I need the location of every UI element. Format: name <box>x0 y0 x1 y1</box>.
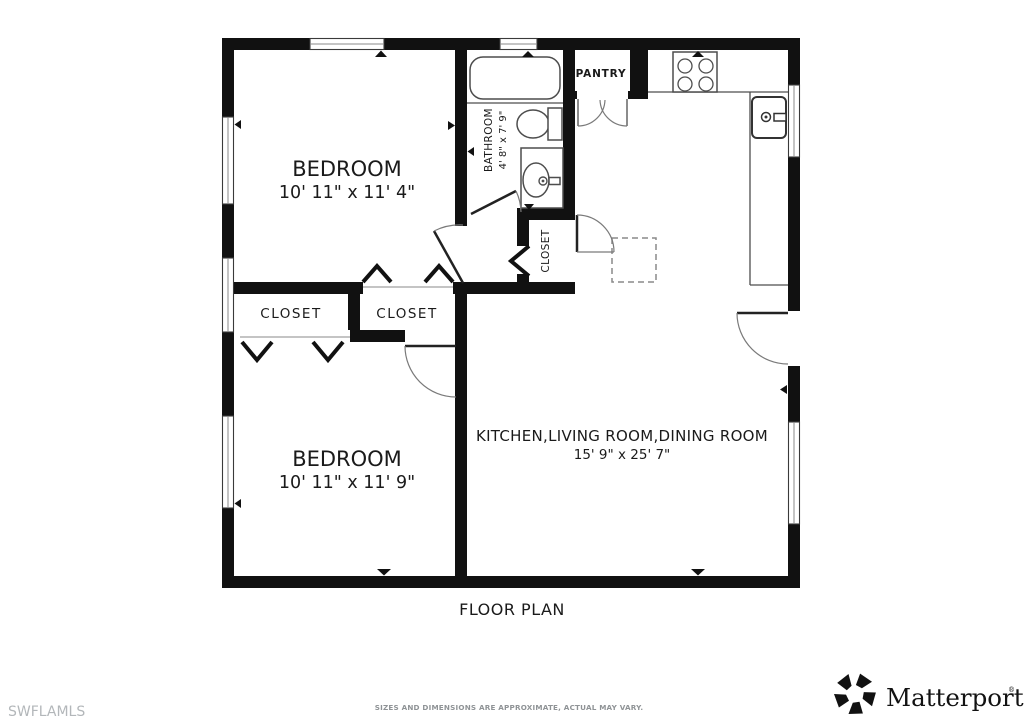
matterport-wordmark: Matterport <box>886 683 1024 712</box>
window-left-bedroom-top <box>223 117 234 204</box>
bathtub <box>467 57 563 103</box>
matterport-logo: Matterport ® <box>834 674 1024 714</box>
window-top-bathroom <box>500 39 537 50</box>
registered-mark: ® <box>1008 686 1015 694</box>
window-left-closet <box>223 258 234 332</box>
bedroom-top-label: BEDROOM <box>292 157 402 181</box>
marker-top-bedroom-window <box>375 51 387 58</box>
closet-left-label: CLOSET <box>260 306 321 322</box>
closet-hall-label: CLOSET <box>540 229 552 272</box>
appliance-space-dashed <box>612 238 656 282</box>
marker-top-bathroom-window <box>522 51 534 57</box>
room-labels: BEDROOM 10' 11" x 11' 4" BEDROOM 10' 11"… <box>260 68 768 493</box>
bedroom-bottom-label: BEDROOM <box>292 447 402 471</box>
bedroom-bottom-door <box>405 346 456 397</box>
pantry-french-doors <box>578 99 627 126</box>
marker-entry-door <box>780 385 787 394</box>
bathroom-label: BATHROOM <box>483 108 495 172</box>
closet-right-label: CLOSET <box>376 306 437 322</box>
bathroom-door <box>471 191 521 214</box>
bathroom-vanity <box>521 148 563 208</box>
entry-door-gap <box>788 311 800 366</box>
window-left-bedroom-bottom <box>223 416 234 508</box>
window-right-kitchen <box>789 85 800 157</box>
matterport-icon <box>834 674 876 714</box>
window-top-bedroom <box>310 39 384 50</box>
pantry-label: PANTRY <box>576 68 627 80</box>
kitchen-sink <box>752 97 786 138</box>
main-room-label: KITCHEN,LIVING ROOM,DINING ROOM <box>476 427 768 445</box>
marker-bottom-living <box>691 569 705 576</box>
main-room-dims: 15' 9" x 25' 7" <box>574 447 671 463</box>
bathroom-fixtures <box>467 57 563 208</box>
doors <box>240 99 788 397</box>
marker-bedroom-wall <box>448 121 455 130</box>
stove <box>673 52 717 92</box>
disclaimer: SIZES AND DIMENSIONS ARE APPROXIMATE, AC… <box>375 703 644 712</box>
bathroom-dims: 4' 8" x 7' 9" <box>498 111 509 170</box>
entry-door <box>737 313 788 364</box>
marker-left-window-bottom <box>235 499 242 508</box>
watermark: SWFLAMLS <box>8 704 85 720</box>
marker-left-window-top <box>235 120 242 129</box>
closet-bifold-doors <box>240 246 529 360</box>
floor-plan-page: BEDROOM 10' 11" x 11' 4" BEDROOM 10' 11"… <box>0 0 1024 723</box>
marker-bathroom-wall <box>468 147 475 156</box>
window-right-living <box>789 422 800 524</box>
kitchen-hall-door <box>577 215 614 252</box>
marker-bottom-bedroom <box>377 569 391 576</box>
bedroom-bottom-dims: 10' 11" x 11' 9" <box>279 473 415 493</box>
bedroom-top-dims: 10' 11" x 11' 4" <box>279 183 415 203</box>
plan-title: FLOOR PLAN <box>459 600 565 619</box>
floor-plan-drawing: BEDROOM 10' 11" x 11' 4" BEDROOM 10' 11"… <box>0 0 1024 723</box>
toilet <box>517 108 562 140</box>
